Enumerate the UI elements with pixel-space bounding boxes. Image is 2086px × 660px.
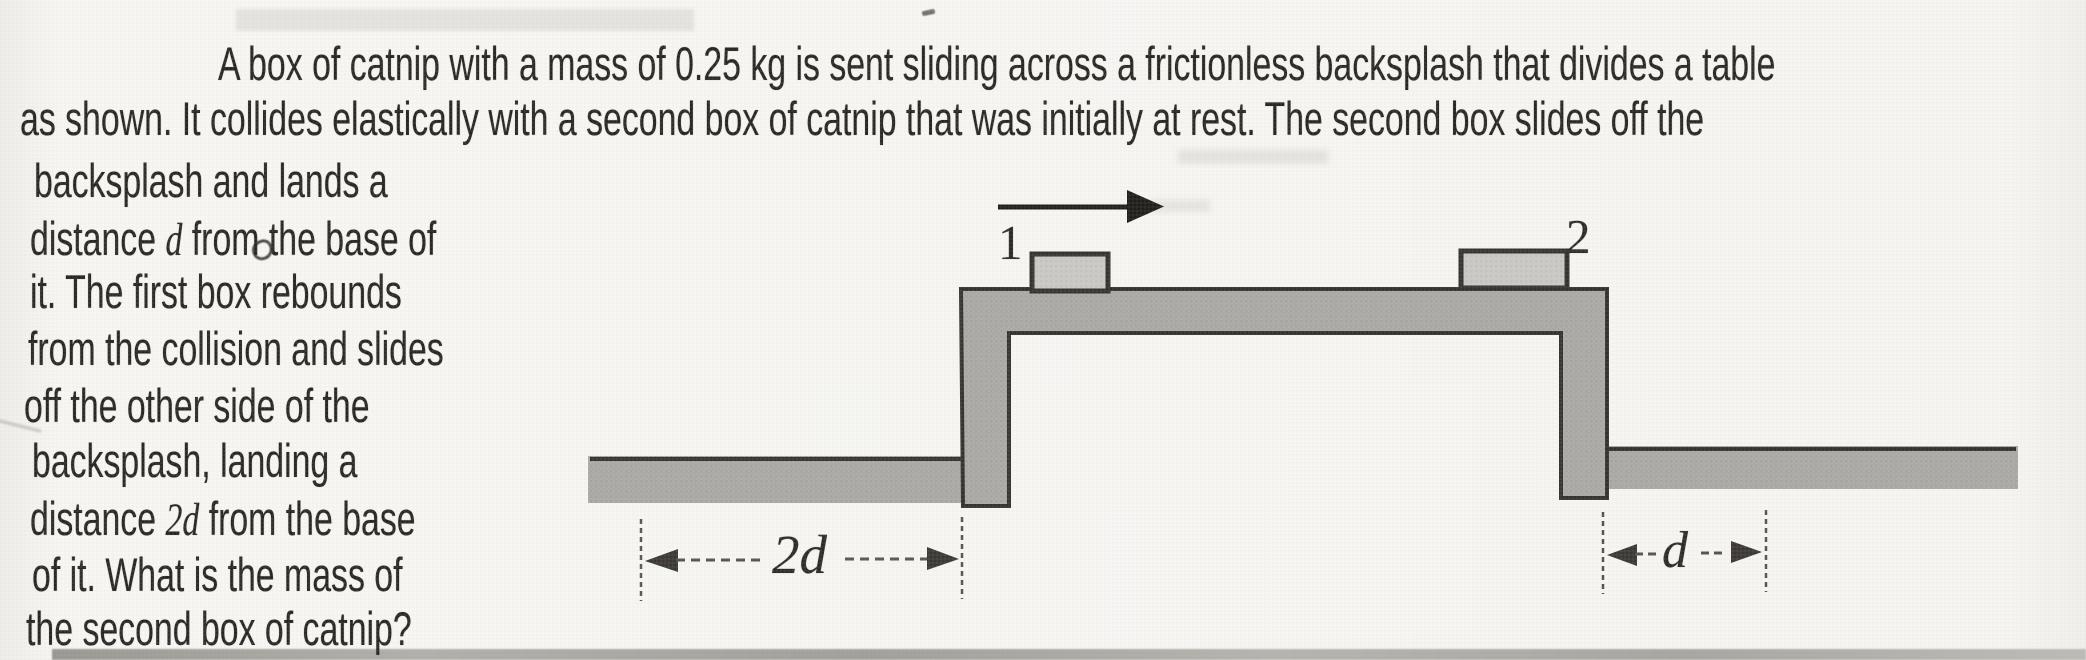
box-1-label: 1 [998, 214, 1023, 271]
dimension-2d-label: 2d [772, 523, 827, 586]
velocity-arrow [998, 190, 1164, 223]
dimension-d-arrowhead-left [1607, 544, 1637, 566]
dimension-2d-arrowhead-left [645, 549, 678, 572]
box-1 [1032, 254, 1108, 291]
backsplash-shape [961, 289, 1607, 506]
velocity-arrow-head [1127, 190, 1164, 223]
scanned-page: A box of catnip with a mass of 0.25 kg i… [0, 0, 2086, 660]
box-2-label: 2 [1566, 208, 1591, 265]
figure-diagram [0, 0, 2086, 660]
box-2 [1461, 251, 1567, 288]
dimension-d-arrowhead-right [1731, 541, 1762, 563]
table-left-surface [588, 456, 984, 503]
table-right-surface [1580, 446, 2018, 489]
dimension-d-label: d [1662, 521, 1688, 580]
dimension-2d-arrowhead-right [927, 547, 959, 570]
